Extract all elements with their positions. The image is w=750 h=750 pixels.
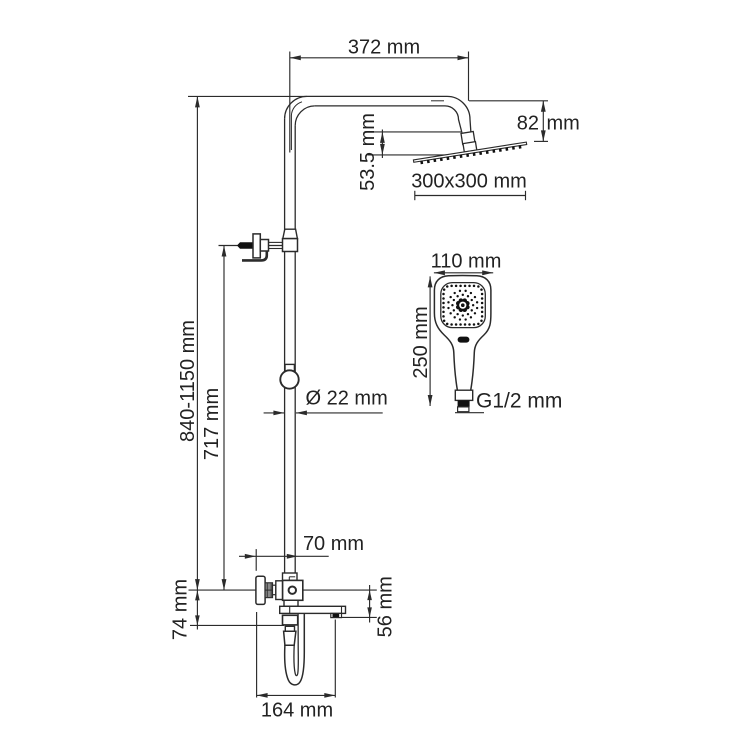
svg-text:164 mm: 164 mm (261, 700, 333, 722)
svg-text:717 mm: 717 mm (201, 388, 223, 460)
svg-text:372 mm: 372 mm (348, 36, 420, 58)
svg-text:110 mm: 110 mm (431, 251, 502, 273)
svg-text:56 mm: 56 mm (375, 576, 397, 637)
svg-text:300x300 mm: 300x300 mm (411, 171, 527, 193)
svg-text:G1/2 mm: G1/2 mm (476, 390, 562, 413)
svg-text:82: 82 (517, 113, 539, 135)
svg-text:53.5 mm: 53.5 mm (357, 113, 379, 191)
svg-text:Ø 22 mm: Ø 22 mm (306, 388, 388, 410)
svg-text:mm: mm (547, 113, 580, 135)
svg-text:74 mm: 74 mm (170, 579, 192, 640)
svg-text:840-1150 mm: 840-1150 mm (177, 320, 199, 442)
svg-text:70 mm: 70 mm (303, 533, 364, 555)
svg-text:250 mm: 250 mm (410, 306, 432, 378)
